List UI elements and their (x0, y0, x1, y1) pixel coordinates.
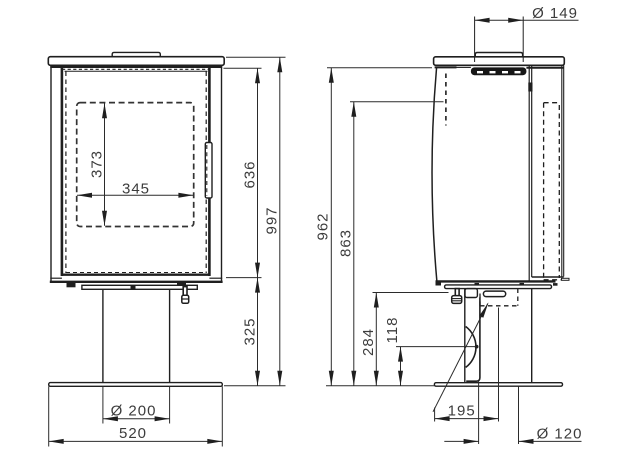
svg-text:520: 520 (119, 425, 147, 442)
svg-text:373: 373 (88, 150, 105, 178)
svg-text:195: 195 (448, 403, 476, 420)
svg-text:325: 325 (241, 317, 258, 345)
svg-text:863: 863 (338, 229, 355, 257)
svg-text:962: 962 (315, 212, 332, 240)
svg-text:636: 636 (241, 160, 258, 188)
svg-text:Ø 149: Ø 149 (532, 5, 578, 22)
svg-text:345: 345 (122, 180, 150, 197)
svg-text:Ø 200: Ø 200 (111, 403, 157, 420)
svg-text:Ø 120: Ø 120 (537, 425, 583, 442)
svg-text:997: 997 (264, 206, 281, 234)
svg-text:284: 284 (360, 328, 377, 356)
svg-text:118: 118 (384, 317, 401, 344)
